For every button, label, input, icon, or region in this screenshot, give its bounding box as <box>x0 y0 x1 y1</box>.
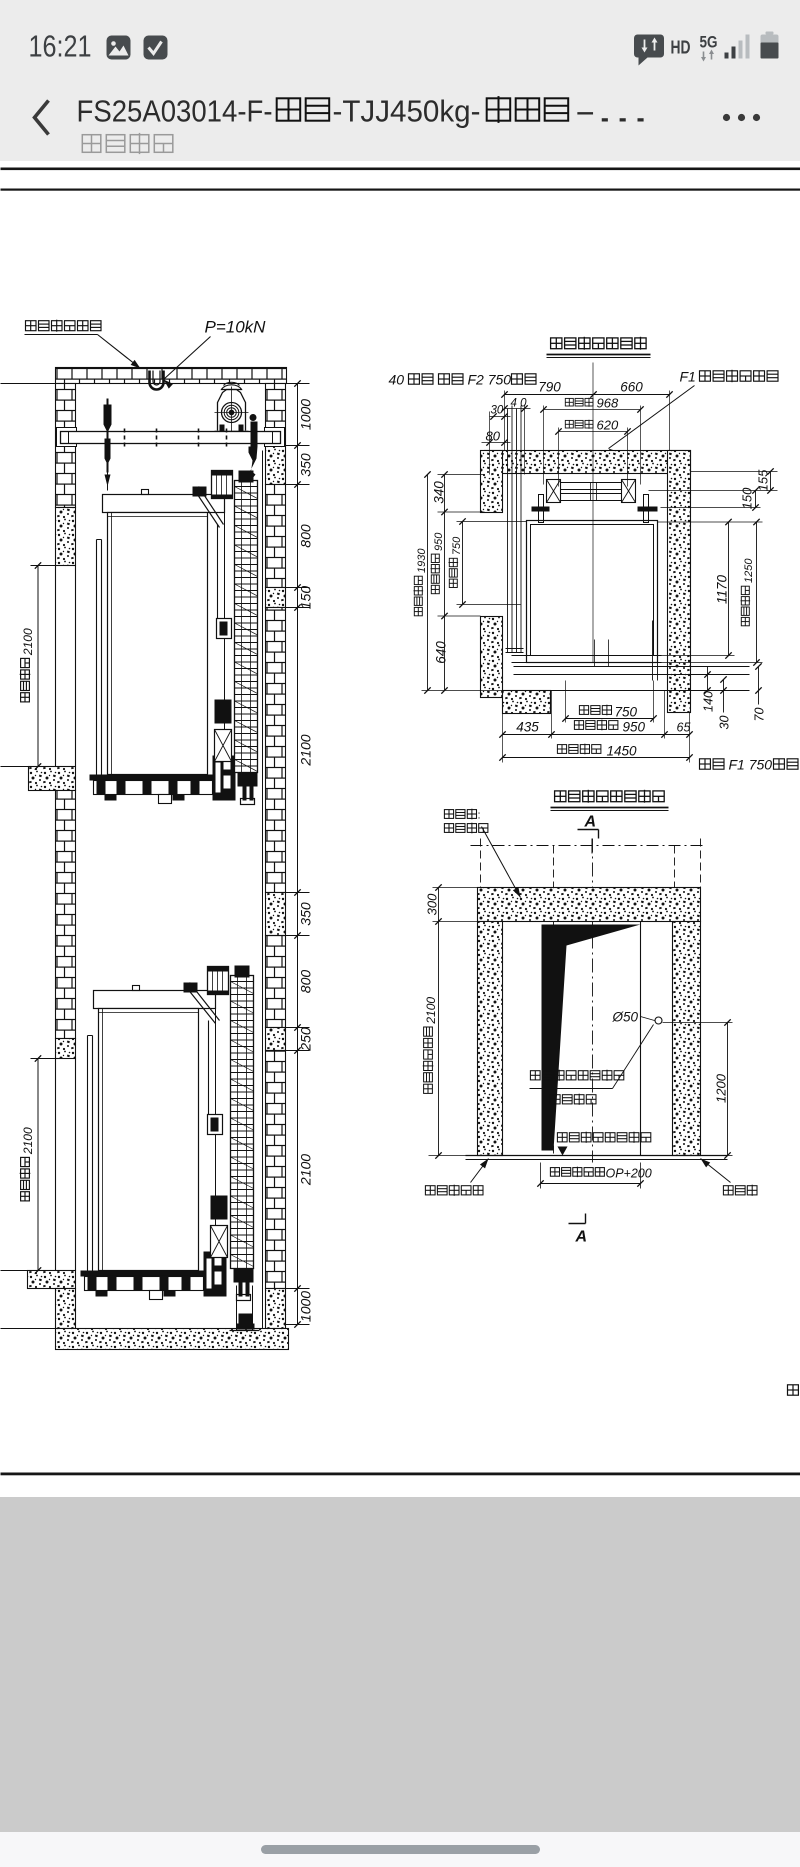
svg-text:620: 620 <box>597 418 619 433</box>
svg-text:340: 340 <box>432 481 447 504</box>
svg-text:70: 70 <box>753 708 767 722</box>
svg-text:HD: HD <box>671 38 691 58</box>
svg-text:800: 800 <box>298 524 314 548</box>
svg-text:P=10kN: P=10kN <box>205 318 267 337</box>
svg-text:250: 250 <box>298 1027 314 1052</box>
svg-text:640: 640 <box>434 641 449 664</box>
svg-text:1250: 1250 <box>743 558 755 583</box>
svg-text:2100: 2100 <box>424 997 438 1025</box>
svg-text:150: 150 <box>298 586 314 610</box>
svg-text:140: 140 <box>702 691 716 712</box>
svg-text:950: 950 <box>433 532 445 551</box>
svg-text:300: 300 <box>425 893 440 915</box>
svg-text:968: 968 <box>597 396 619 411</box>
svg-text:2100: 2100 <box>21 1127 35 1155</box>
svg-text:-TJJ450kg-: -TJJ450kg- <box>333 94 481 129</box>
svg-text:150: 150 <box>740 487 755 509</box>
svg-text:30: 30 <box>491 405 504 417</box>
svg-text:16:21: 16:21 <box>29 29 92 64</box>
svg-text:A: A <box>575 1229 588 1246</box>
svg-text:F1: F1 <box>680 369 696 385</box>
svg-text:790: 790 <box>538 380 561 395</box>
svg-text:F2 750: F2 750 <box>468 372 512 388</box>
svg-text:OP+200: OP+200 <box>606 1167 652 1181</box>
svg-text:350: 350 <box>298 453 314 477</box>
svg-text:80: 80 <box>486 429 501 444</box>
svg-text:1930: 1930 <box>416 548 428 573</box>
svg-text:A: A <box>584 814 597 831</box>
svg-text:FS25A03014-F-: FS25A03014-F- <box>77 94 273 129</box>
svg-text:40: 40 <box>389 372 405 388</box>
svg-text:1450: 1450 <box>607 744 638 759</box>
svg-text:435: 435 <box>516 720 539 735</box>
svg-text:750: 750 <box>615 705 638 720</box>
svg-text:750: 750 <box>451 536 463 555</box>
svg-text:350: 350 <box>298 902 314 926</box>
svg-text:-...: -... <box>575 94 650 129</box>
svg-text:800: 800 <box>298 970 314 994</box>
svg-text:2100: 2100 <box>298 734 314 766</box>
svg-text:1170: 1170 <box>715 574 730 604</box>
svg-text:2100: 2100 <box>298 1154 314 1186</box>
svg-text:1200: 1200 <box>714 1073 729 1103</box>
svg-text:Ø50: Ø50 <box>612 1010 639 1025</box>
svg-text:660: 660 <box>620 380 643 395</box>
svg-text:65: 65 <box>677 721 691 735</box>
svg-text:2100: 2100 <box>21 628 35 656</box>
svg-text:950: 950 <box>623 720 646 735</box>
svg-text:5G: 5G <box>700 33 718 52</box>
svg-text::: : <box>478 810 481 822</box>
svg-text:1000: 1000 <box>298 399 314 430</box>
svg-text:1000: 1000 <box>298 1291 314 1322</box>
svg-text:30: 30 <box>718 716 732 730</box>
svg-text:F1 750: F1 750 <box>729 757 773 773</box>
